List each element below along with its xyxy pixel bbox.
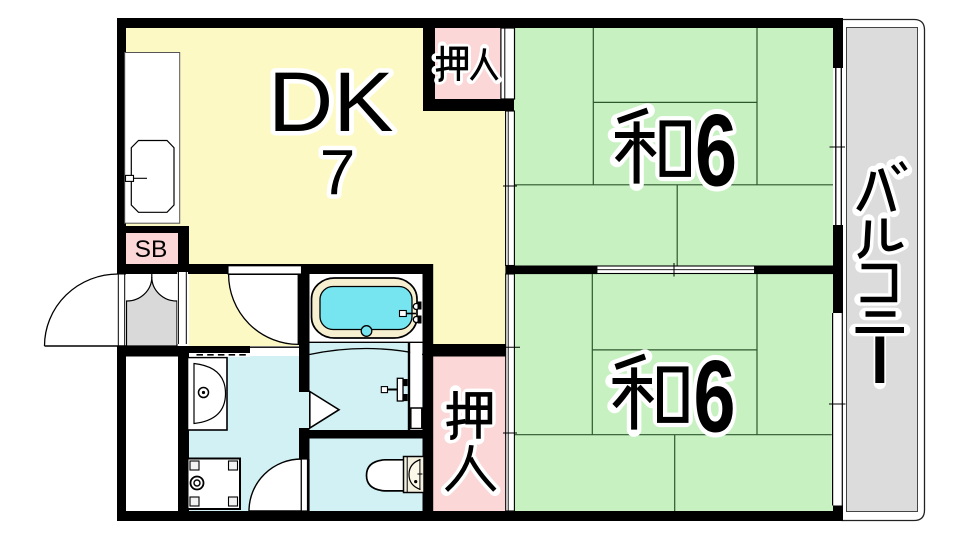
svg-text:6: 6 <box>694 340 736 454</box>
svg-text:6: 6 <box>695 94 737 208</box>
svg-text:SB: SB <box>135 236 168 263</box>
svg-text:7: 7 <box>320 137 356 209</box>
svg-text:DK: DK <box>268 55 394 149</box>
